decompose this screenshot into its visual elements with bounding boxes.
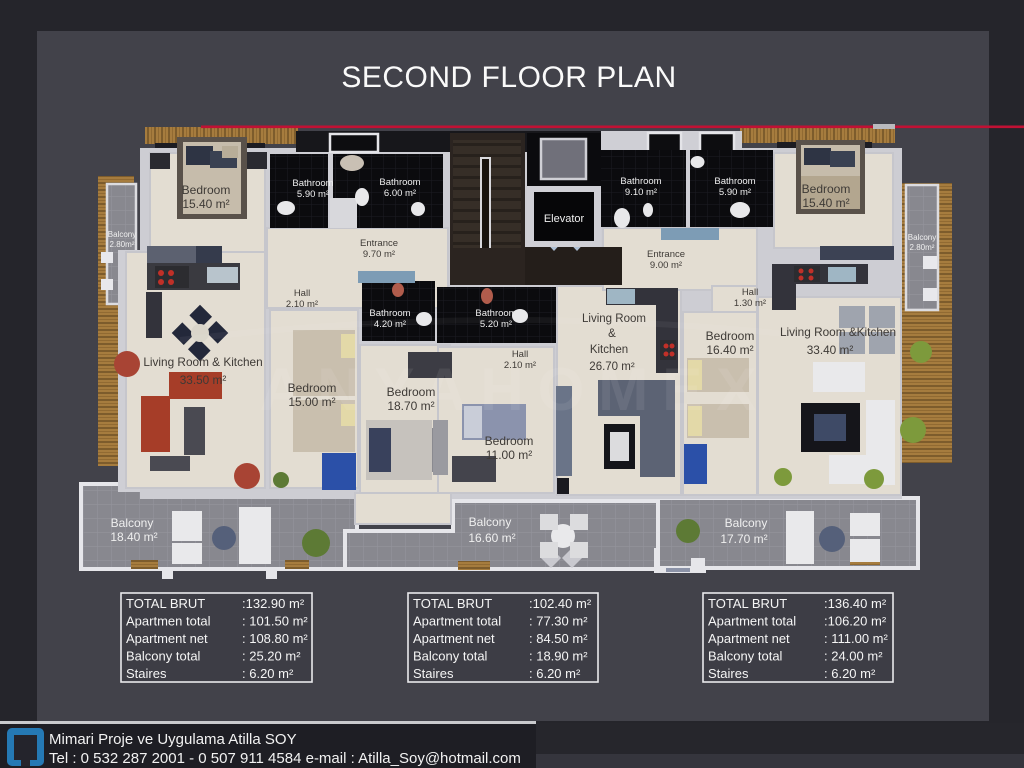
svg-text:Bathroom: Bathroom: [475, 308, 516, 319]
svg-text:5.20 m²: 5.20 m²: [480, 319, 512, 330]
svg-text:Bathroom: Bathroom: [379, 177, 420, 188]
svg-text:Hall: Hall: [742, 287, 758, 298]
svg-text:18.70 m²: 18.70 m²: [387, 399, 434, 413]
svg-text:Entrance: Entrance: [360, 238, 398, 249]
svg-text:2.10 m²: 2.10 m²: [286, 299, 318, 310]
svg-text:Bedroom: Bedroom: [485, 434, 534, 448]
svg-text:6.00 m²: 6.00 m²: [384, 188, 416, 199]
svg-text:4.20 m²: 4.20 m²: [374, 319, 406, 330]
svg-text:Entrance: Entrance: [647, 249, 685, 260]
svg-text:Elevator: Elevator: [544, 213, 585, 225]
svg-text::106.20 m²: :106.20 m²: [824, 614, 887, 629]
svg-text:Hall: Hall: [294, 288, 310, 299]
svg-text:Bedroom: Bedroom: [802, 182, 851, 196]
svg-text:: 24.00 m²: : 24.00 m²: [824, 649, 883, 664]
svg-text:Bedroom: Bedroom: [387, 385, 436, 399]
svg-text:26.70 m²: 26.70 m²: [589, 361, 635, 373]
svg-text:TOTAL BRUT: TOTAL BRUT: [413, 596, 492, 611]
svg-text:5.90 m²: 5.90 m²: [297, 189, 329, 200]
svg-text:Staires: Staires: [708, 666, 749, 681]
svg-text:16.40 m²: 16.40 m²: [706, 343, 753, 357]
svg-text::132.90 m²: :132.90 m²: [242, 596, 305, 611]
svg-text:: 6.20 m²: : 6.20 m²: [824, 666, 876, 681]
svg-text:Bathroom: Bathroom: [714, 176, 755, 187]
svg-text:Balcony: Balcony: [111, 516, 154, 530]
svg-text:Balcony total: Balcony total: [413, 649, 488, 664]
svg-text:15.00 m²: 15.00 m²: [288, 395, 335, 409]
svg-text:: 108.80 m²: : 108.80 m²: [242, 631, 308, 646]
svg-text:: 101.50 m²: : 101.50 m²: [242, 614, 308, 629]
svg-text::102.40 m²: :102.40 m²: [529, 596, 592, 611]
svg-text:Bedroom: Bedroom: [706, 329, 755, 343]
svg-text:15.40 m²: 15.40 m²: [182, 197, 229, 211]
svg-text:2.10 m²: 2.10 m²: [504, 360, 536, 371]
svg-text:1.30 m²: 1.30 m²: [734, 298, 766, 309]
svg-text:: 25.20 m²: : 25.20 m²: [242, 649, 301, 664]
svg-text:2.80m²: 2.80m²: [110, 240, 135, 249]
svg-text:18.40 m²: 18.40 m²: [110, 530, 157, 544]
svg-text:Apartment total: Apartment total: [708, 614, 796, 629]
svg-text:Bathroom: Bathroom: [369, 308, 410, 319]
svg-text:Balcony: Balcony: [469, 515, 512, 529]
svg-text:Mimari Proje ve Uygulama Atill: Mimari Proje ve Uygulama Atilla SOY: [49, 731, 297, 748]
svg-text:Living Room: Living Room: [582, 313, 646, 325]
svg-text:: 6.20 m²: : 6.20 m²: [242, 666, 294, 681]
svg-text:: 18.90 m²: : 18.90 m²: [529, 649, 588, 664]
svg-text:17.70 m²: 17.70 m²: [720, 532, 767, 546]
svg-text:Apartment total: Apartment total: [413, 614, 501, 629]
svg-text:: 111.00 m²: : 111.00 m²: [824, 631, 888, 646]
svg-text:Hall: Hall: [512, 349, 528, 360]
svg-text:: 6.20 m²: : 6.20 m²: [529, 666, 581, 681]
svg-text:: 84.50 m²: : 84.50 m²: [529, 631, 588, 646]
svg-text:Bathroom: Bathroom: [620, 176, 661, 187]
svg-text:Apartment net: Apartment net: [126, 631, 208, 646]
svg-text:Balcony: Balcony: [908, 233, 936, 242]
svg-text:Bedroom: Bedroom: [182, 183, 231, 197]
svg-text:Balcony: Balcony: [725, 516, 768, 530]
svg-text:Staires: Staires: [413, 666, 454, 681]
svg-text:: 77.30 m²: : 77.30 m²: [529, 614, 588, 629]
svg-text:5.90 m²: 5.90 m²: [719, 187, 751, 198]
svg-text:Apartmen total: Apartmen total: [126, 614, 211, 629]
svg-text:Apartment net: Apartment net: [708, 631, 790, 646]
svg-text:16.60 m²: 16.60 m²: [468, 531, 515, 545]
svg-text:TOTAL BRUT: TOTAL BRUT: [708, 596, 787, 611]
svg-text:33.50 m²: 33.50 m²: [180, 373, 227, 387]
svg-text:&: &: [608, 328, 616, 340]
svg-text:Living Room &Kitchen: Living Room &Kitchen: [780, 325, 896, 339]
svg-text::136.40 m²: :136.40 m²: [824, 596, 887, 611]
svg-text:Kitchen: Kitchen: [590, 344, 628, 356]
svg-text:Balcony total: Balcony total: [126, 649, 201, 664]
svg-text:Living Room & Kitchen: Living Room & Kitchen: [143, 355, 262, 369]
svg-text:9.70 m²: 9.70 m²: [363, 249, 395, 260]
svg-text:Balcony total: Balcony total: [708, 649, 783, 664]
svg-text:11.00 m²: 11.00 m²: [486, 448, 532, 462]
svg-text:Balcony: Balcony: [108, 230, 136, 239]
svg-text:9.00 m²: 9.00 m²: [650, 260, 682, 271]
svg-text:33.40 m²: 33.40 m²: [807, 343, 854, 357]
svg-text:Bathroom: Bathroom: [292, 178, 333, 189]
svg-text:Apartment net: Apartment net: [413, 631, 495, 646]
svg-text:TOTAL BRUT: TOTAL BRUT: [126, 596, 205, 611]
svg-text:Bedroom: Bedroom: [288, 381, 337, 395]
svg-text:SECOND FLOOR PLAN: SECOND FLOOR PLAN: [341, 61, 676, 94]
svg-text:Tel : 0 532 287 2001 - 0 507: Tel : 0 532 287 2001 - 0 507 911 4584 e-…: [49, 750, 521, 767]
svg-text:9.10 m²: 9.10 m²: [625, 187, 657, 198]
svg-text:Staires: Staires: [126, 666, 167, 681]
svg-text:2.80m²: 2.80m²: [910, 243, 935, 252]
svg-text:15.40 m²: 15.40 m²: [802, 196, 849, 210]
